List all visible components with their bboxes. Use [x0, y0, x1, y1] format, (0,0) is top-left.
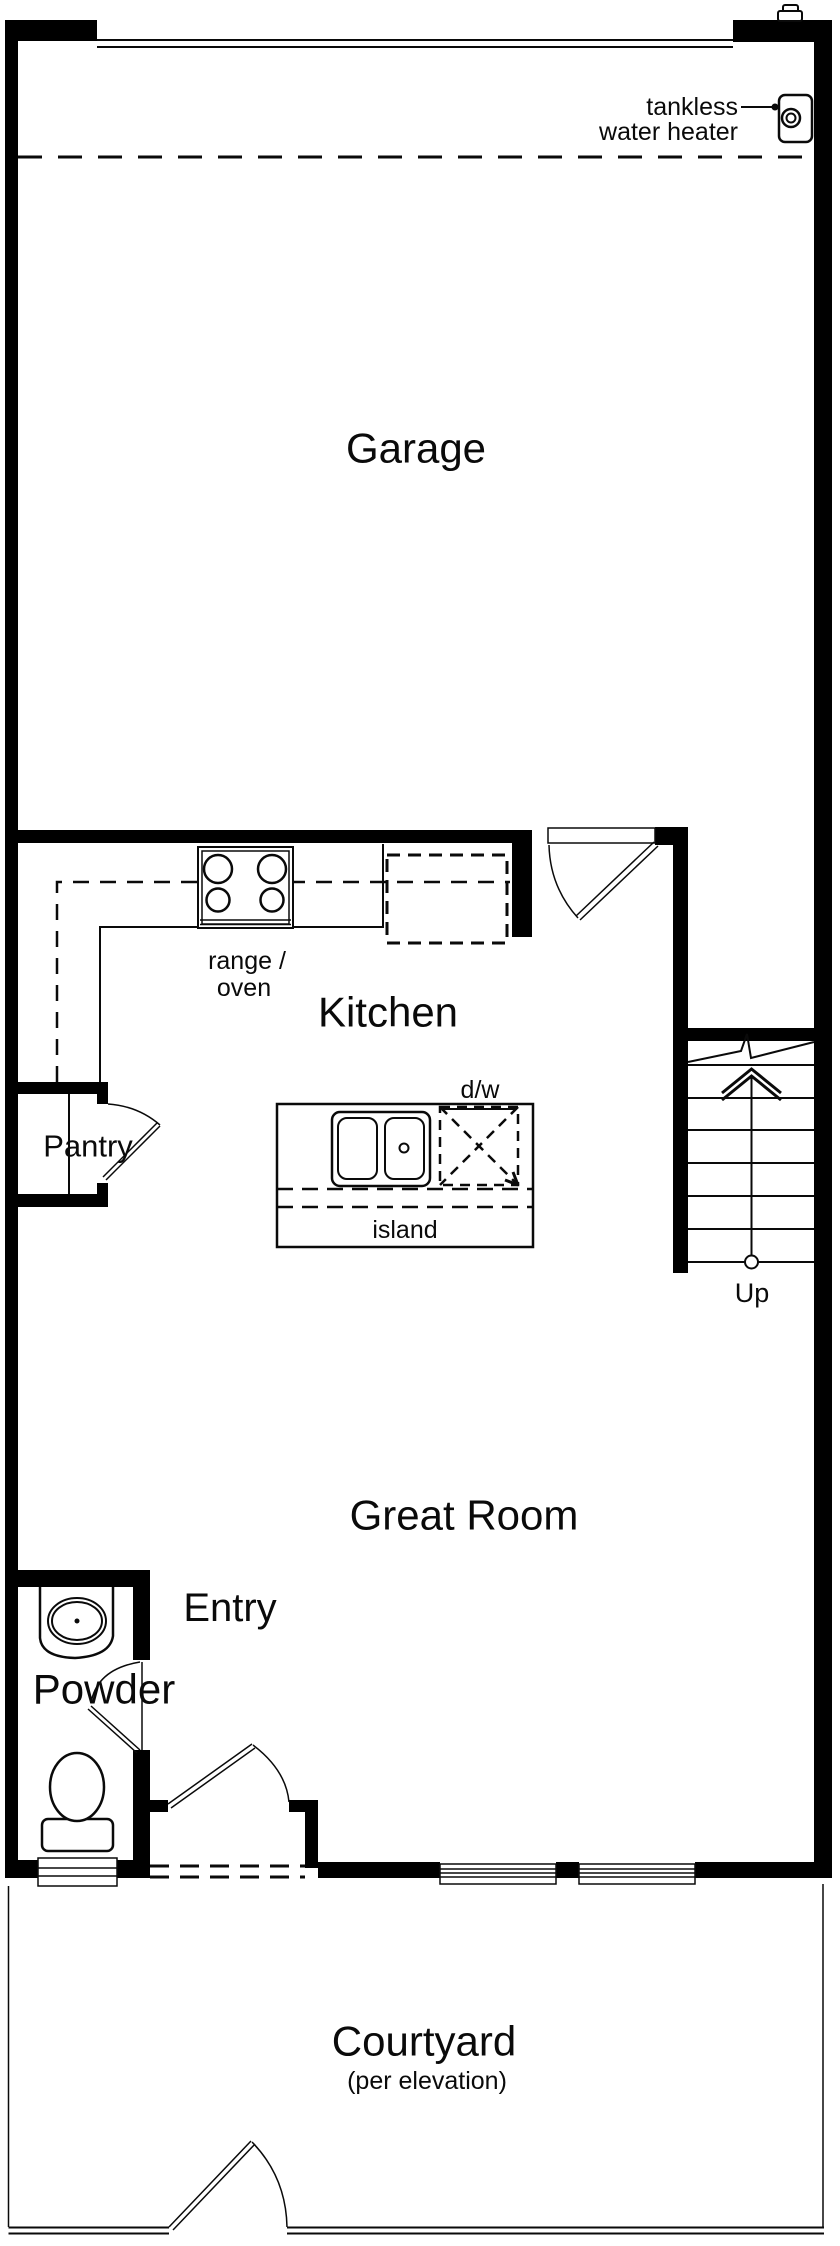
porch-dashed-lines	[150, 1866, 305, 1877]
wall-powder-top	[18, 1570, 150, 1587]
walls	[5, 20, 832, 1878]
wall-bottom-mullion	[556, 1862, 579, 1878]
wall-stair-top	[688, 1028, 814, 1041]
water-heater-leader-line	[741, 104, 779, 111]
wall-bottom-seg4	[695, 1862, 832, 1878]
wall-front-door-left-stub	[150, 1800, 168, 1812]
garage-label: Garage	[346, 425, 486, 472]
wall-bottom-seg1	[5, 1860, 38, 1878]
staircase	[688, 1034, 814, 1269]
refrigerator-dashed-box	[387, 855, 507, 943]
courtyard-note-label: (per elevation)	[347, 2067, 507, 2095]
wall-pantry-top	[18, 1082, 108, 1094]
wall-pantry-bottom-stub	[97, 1183, 108, 1194]
wall-door-right-jamb	[655, 827, 688, 845]
great-room-label: Great Room	[350, 1492, 579, 1539]
water-heater-icon	[779, 95, 812, 142]
range-oven-label-line2: oven	[217, 974, 271, 1002]
wall-powder-right-lower	[133, 1750, 150, 1878]
powder-room	[38, 1587, 142, 1886]
great-room-window-2-icon	[579, 1864, 695, 1884]
toilet-icon	[42, 1753, 113, 1851]
water-heater-label-line1: tankless	[646, 93, 738, 121]
powder-label: Powder	[33, 1666, 175, 1713]
dishwasher-label: d/w	[461, 1076, 501, 1104]
vanity-sink-icon	[40, 1587, 113, 1658]
wall-garage-kitchen	[18, 830, 532, 843]
courtyard-gate-door	[169, 2141, 287, 2230]
wall-stair-left	[673, 843, 688, 1273]
stair-newel-circle	[745, 1256, 758, 1269]
kitchen-label: Kitchen	[318, 989, 458, 1036]
wall-right	[814, 20, 832, 1878]
wall-powder-right-upper	[133, 1587, 150, 1660]
great-room-window-1-icon	[440, 1864, 556, 1884]
wall-bottom-seg2	[117, 1860, 150, 1878]
wall-pantry-top-stub	[97, 1094, 108, 1104]
stairs-up-label: Up	[735, 1278, 770, 1308]
range-oven-icon	[198, 847, 293, 928]
entry-label: Entry	[183, 1586, 276, 1630]
front-door	[168, 1744, 289, 1808]
wall-front-door-right-jamb-h	[289, 1800, 318, 1812]
wall-left	[5, 20, 18, 1878]
wall-front-door-right-jamb-v	[305, 1812, 318, 1868]
garage-door	[97, 40, 733, 47]
range-oven-label-line1: range /	[208, 947, 286, 975]
water-heater-label-line2: water heater	[598, 118, 738, 146]
kitchen-door	[548, 828, 658, 920]
wall-pantry-bottom	[18, 1194, 108, 1207]
pantry-label: Pantry	[43, 1129, 133, 1164]
roof-vent-icon	[778, 5, 802, 21]
wall-top-left-block	[5, 20, 97, 41]
powder-window-icon	[38, 1858, 117, 1886]
island-label: island	[372, 1216, 437, 1244]
courtyard-label: Courtyard	[332, 2018, 516, 2065]
wall-door-pillar	[512, 843, 532, 937]
wall-bottom-seg3	[318, 1862, 440, 1878]
floor-plan: Garage Kitchen Great Room Entry Powder P…	[0, 0, 840, 2246]
